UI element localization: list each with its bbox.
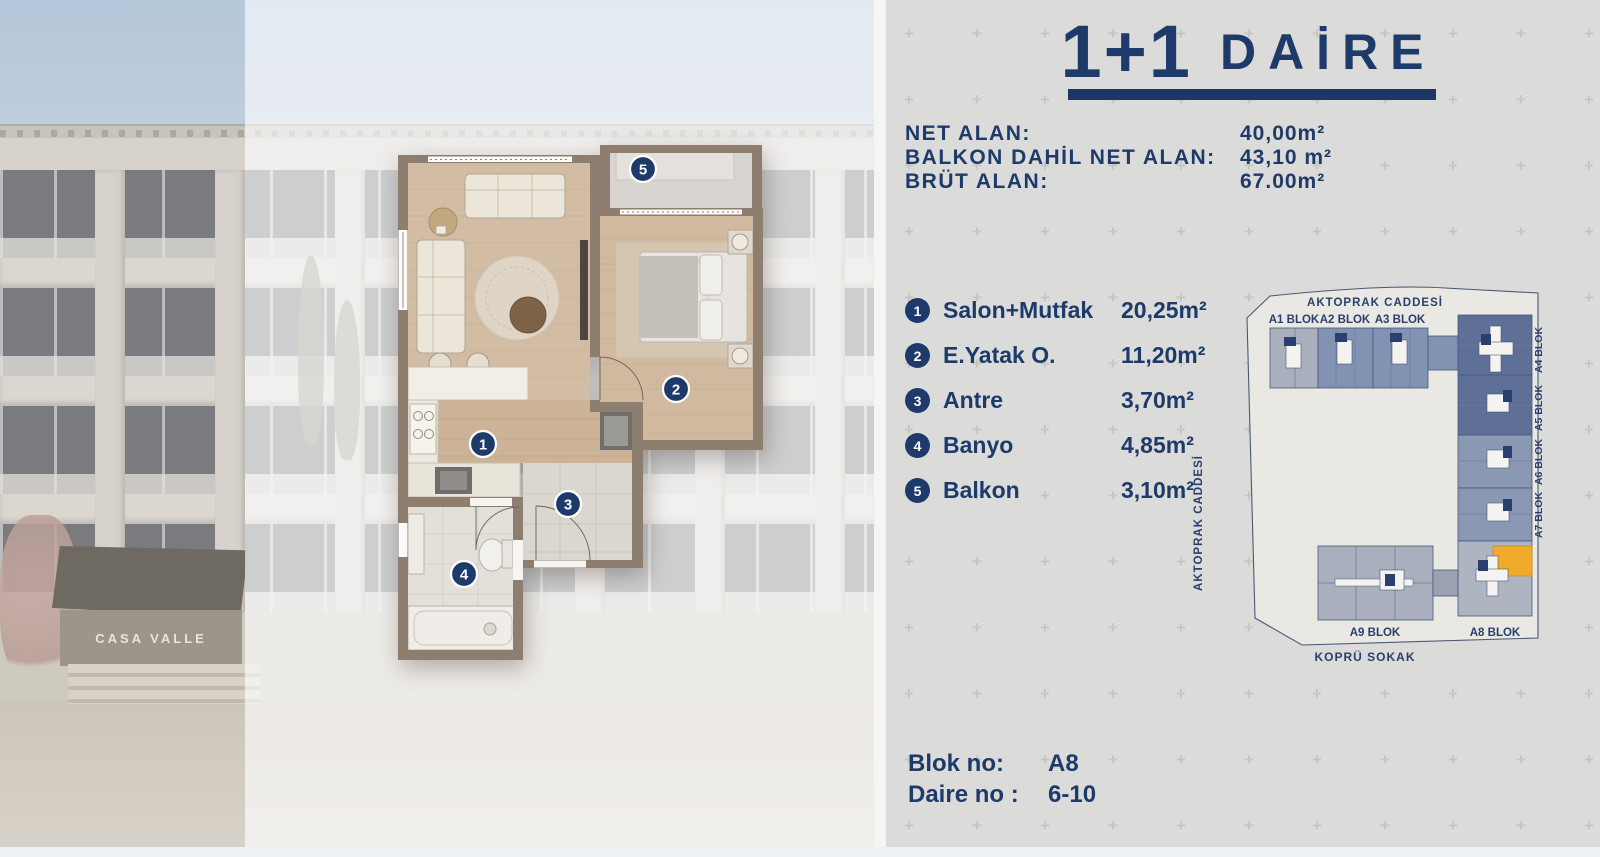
stat-row: BALKON DAHİL NET ALAN: 43,10 m² (905, 146, 1385, 170)
shaft-inner (604, 416, 628, 446)
entry-floor (523, 463, 633, 567)
toilet-tank (502, 540, 513, 568)
stat-value: 43,10 m² (1240, 146, 1332, 170)
street-top-label: AKTOPRAK CADDESİ (1307, 296, 1443, 309)
room-badge: 1 (905, 298, 930, 323)
stat-value: 67.00m² (1240, 170, 1325, 194)
sofa-l (417, 240, 465, 353)
table-lamp (732, 348, 748, 364)
panel-divider (874, 0, 886, 857)
blok-value: A8 (1048, 750, 1079, 778)
room-name: Balkon (943, 477, 1121, 504)
block-a2-label: A2 BLOK (1320, 314, 1371, 326)
blok-label: Blok no: (908, 750, 1048, 778)
room-name: Salon+Mutfak (943, 297, 1121, 324)
project-sign-text: CASA VALLE (95, 631, 207, 646)
floor-plan: 1 2 3 4 5 (388, 134, 780, 709)
unit-info: Blok no: A8 Daire no : 6-10 (908, 748, 1096, 810)
stat-row: NET ALAN: 40,00m² (905, 122, 1385, 146)
blok-row: Blok no: A8 (908, 748, 1096, 779)
area-stats: NET ALAN: 40,00m² BALKON DAHİL NET ALAN:… (905, 122, 1385, 194)
vanity (408, 514, 424, 574)
block-a8-label: A8 BLOK (1470, 627, 1521, 639)
side-table-tray (436, 226, 446, 234)
street-left-label: AKTOPRAK CADDESİ (1192, 455, 1205, 591)
room-name: Banyo (943, 432, 1121, 459)
plan-badge-2-num: 2 (672, 382, 680, 399)
room-name: E.Yatak O. (943, 342, 1121, 369)
block-a7-label: A7 BLOK (1533, 492, 1545, 539)
block-a6-label: A6 BLOK (1533, 439, 1545, 486)
street-bottom-label: KOPRÜ SOKAK (1314, 649, 1415, 664)
sofa (465, 174, 565, 218)
plan-badge-4-num: 4 (460, 567, 469, 584)
title-word: DAİRE (1220, 24, 1436, 80)
stat-label: BRÜT ALAN: (905, 170, 1240, 194)
table-lamp (732, 234, 748, 250)
kitchen-island (408, 367, 528, 400)
pillow (700, 300, 722, 340)
cooktop (410, 404, 436, 454)
daire-row: Daire no : 6-10 (908, 779, 1096, 810)
project-sign: CASA VALLE (60, 610, 242, 666)
stat-label: BALKON DAHİL NET ALAN: (905, 146, 1240, 170)
toilet (479, 539, 505, 571)
site-plan: AKTOPRAK CADDESİ AKTOPRAK CADDESİ KOPRÜ … (1185, 278, 1565, 668)
room-name: Antre (943, 387, 1121, 414)
plan-badge-5-num: 5 (639, 162, 647, 179)
room-badge: 4 (905, 433, 930, 458)
room-area: 4,85m² (1121, 432, 1194, 459)
entrance-canopy (52, 546, 248, 618)
block-a4-label: A4 BLOK (1533, 327, 1545, 374)
block-a1-label: A1 BLOK (1269, 314, 1320, 326)
oven-glass (440, 471, 467, 490)
tv-unit (580, 240, 588, 340)
block-a9-label: A9 BLOK (1350, 627, 1401, 639)
title-underline (1068, 89, 1436, 100)
room-area: 3,70m² (1121, 387, 1194, 414)
bathtub-drain (484, 623, 496, 635)
pilaster (95, 170, 125, 612)
block-a3-label: A3 BLOK (1375, 314, 1426, 326)
room-badge: 5 (905, 478, 930, 503)
pillow (700, 255, 722, 295)
entrance-steps (68, 664, 260, 704)
stat-value: 40,00m² (1240, 122, 1325, 146)
plan-badge-1-num: 1 (479, 437, 487, 454)
block-a9-a8-connector (1433, 570, 1458, 596)
block-connector (1428, 336, 1458, 370)
stat-label: NET ALAN: (905, 122, 1240, 146)
room-badge: 3 (905, 388, 930, 413)
pilaster (215, 170, 245, 612)
page-title: 1+1DAİRE (1058, 16, 1438, 88)
stat-row: BRÜT ALAN: 67.00m² (905, 170, 1385, 194)
room-area: 3,10m² (1121, 477, 1194, 504)
daire-label: Daire no : (908, 781, 1048, 809)
block-a5-label: A5 BLOK (1533, 385, 1545, 432)
title-type: 1+1 (1060, 10, 1192, 93)
plan-badge-3-num: 3 (564, 497, 572, 514)
bathtub (408, 606, 518, 650)
coffee-table (510, 297, 546, 333)
room-badge: 2 (905, 343, 930, 368)
bed-blanket (640, 256, 698, 338)
daire-value: 6-10 (1048, 781, 1096, 809)
bottom-bar (0, 847, 1600, 857)
